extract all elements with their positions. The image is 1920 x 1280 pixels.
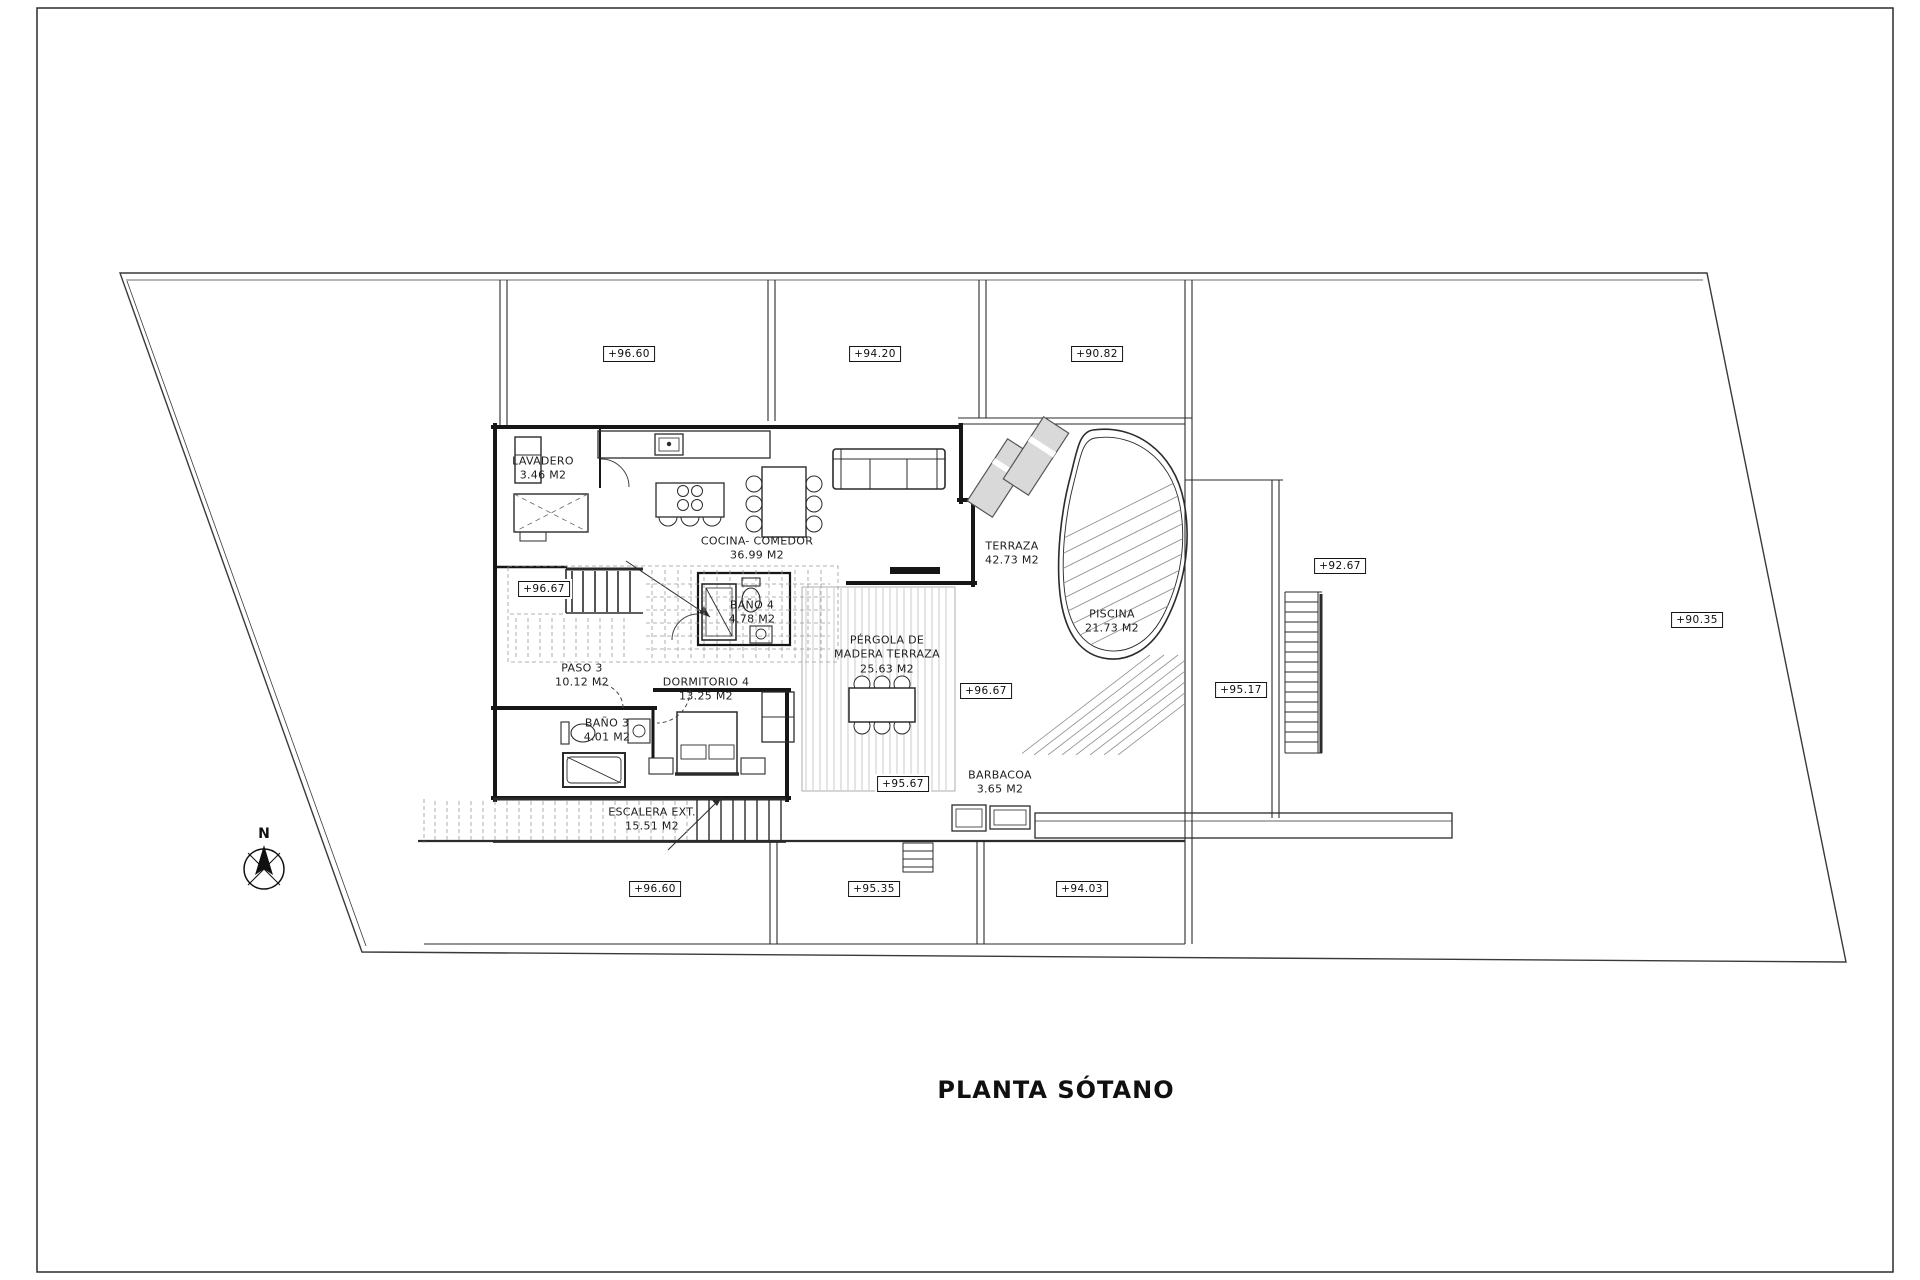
elevation-marker: +95.17 — [1215, 682, 1267, 698]
interior-stair — [566, 561, 710, 617]
room-label-pergola: PÉRGOLA DE MADERA TERRAZA25.63 M2 — [828, 634, 946, 677]
exterior-stair-east — [1285, 592, 1322, 753]
site-walls — [418, 280, 1283, 944]
room-label-cocina: COCINA- COMEDOR36.99 M2 — [701, 535, 813, 564]
north-label: N — [258, 826, 270, 842]
room-label-bano3: BAÑO 34.01 M2 — [584, 717, 631, 746]
pergola-table — [849, 676, 915, 734]
room-label-dormitorio4: DORMITORIO 413.25 M2 — [663, 676, 750, 705]
elevation-marker: +95.35 — [848, 881, 900, 897]
elevation-marker: +96.67 — [518, 581, 570, 597]
room-label-barbacoa: BARBACOA3.65 M2 — [968, 769, 1032, 798]
elevation-marker: +92.67 — [1314, 558, 1366, 574]
room-label-escalera-ext: ESCALERA EXT.15.51 M2 — [608, 806, 696, 835]
elevation-marker: +95.67 — [877, 776, 929, 792]
parcel-boundary — [120, 273, 1846, 962]
north-compass-icon — [244, 845, 284, 889]
bedroom4-furniture — [649, 692, 794, 774]
barbecue-counter — [952, 805, 1452, 838]
elevation-marker: +96.60 — [603, 346, 655, 362]
elevation-marker: +94.03 — [1056, 881, 1108, 897]
pool — [1030, 429, 1200, 675]
room-label-piscina: PISCINA21.73 M2 — [1085, 608, 1139, 637]
elevation-marker: +90.82 — [1071, 346, 1123, 362]
room-label-paso3: PASO 310.12 M2 — [555, 662, 609, 691]
kitchen-fixtures — [598, 431, 770, 526]
elevation-marker: +90.35 — [1671, 612, 1723, 628]
room-label-terraza: TERRAZA42.73 M2 — [985, 540, 1039, 569]
elevation-marker: +94.20 — [849, 346, 901, 362]
floor-plan-page: LAVADERO3.46 M2 COCINA- COMEDOR36.99 M2 … — [0, 0, 1920, 1280]
sofa — [833, 449, 945, 489]
dining-table — [746, 467, 822, 537]
page-title: PLANTA SÓTANO — [937, 1076, 1174, 1104]
room-label-bano4: BAÑO 44.78 M2 — [729, 599, 776, 628]
elevation-marker: +96.67 — [960, 683, 1012, 699]
living-window — [890, 567, 940, 574]
ramp-hatch — [1020, 655, 1248, 755]
laundry-fixtures — [514, 437, 588, 541]
room-label-lavadero: LAVADERO3.46 M2 — [512, 455, 574, 484]
elevation-marker: +96.60 — [629, 881, 681, 897]
deck-steps — [903, 843, 933, 872]
